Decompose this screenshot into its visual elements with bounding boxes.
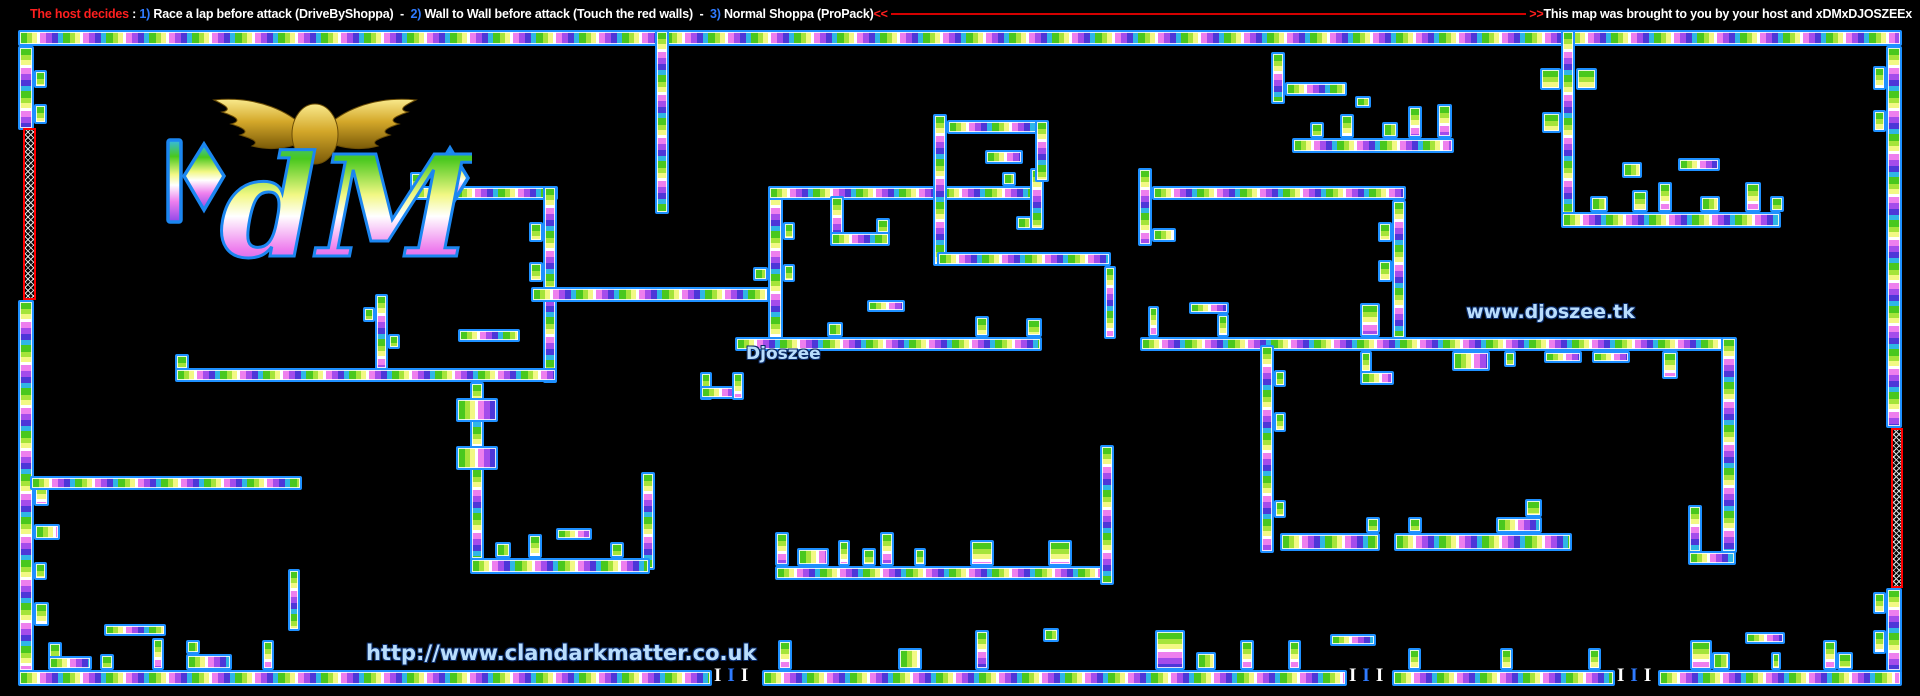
wall-segment: [1873, 110, 1886, 132]
wall-segment: [1561, 212, 1781, 228]
wall-segment: [1678, 158, 1720, 171]
wall-segment: [175, 368, 557, 382]
wall-segment: [1542, 112, 1561, 133]
wall-segment: [1662, 351, 1678, 379]
header-text-segment: >>: [1529, 7, 1543, 21]
rules-text-left: The host decides : 1) Race a lap before …: [30, 7, 888, 21]
wall-segment: [18, 30, 1902, 46]
wall-segment: [1217, 314, 1229, 337]
wall-segment: [1240, 640, 1254, 670]
wall-segment: [1274, 370, 1286, 387]
wall-segment: [655, 30, 669, 214]
wall-segment: [34, 524, 60, 540]
wall-segment: [1048, 540, 1072, 566]
wall-segment: [1576, 68, 1597, 90]
wall-segment: [34, 602, 49, 626]
wall-segment: [531, 287, 769, 302]
spawn-marker-glyph: I: [1362, 668, 1369, 684]
spawn-marker-glyph: I: [1617, 668, 1624, 684]
wall-segment: [34, 70, 47, 88]
red-wall-segment: [23, 128, 36, 300]
wall-segment: [1873, 66, 1886, 90]
wall-segment: [1285, 82, 1347, 96]
wall-segment: [1271, 52, 1285, 104]
wall-segment: [1540, 68, 1561, 90]
wall-segment: [1140, 337, 1723, 351]
wall-segment: [528, 534, 542, 558]
wall-segment: [970, 540, 994, 566]
wall-segment: [48, 656, 92, 670]
clan-website-label: http://www.clandarkmatter.co.uk: [366, 641, 756, 665]
wall-segment: [456, 398, 498, 422]
wall-segment: [1721, 337, 1737, 553]
header-text-segment: 2): [410, 7, 421, 21]
wall-segment: [1292, 138, 1454, 153]
wall-segment: [1378, 260, 1392, 282]
wall-segment: [827, 322, 843, 337]
wall-segment: [1712, 652, 1730, 670]
wall-segment: [838, 540, 850, 566]
wall-segment: [34, 562, 47, 580]
wall-segment: [1688, 505, 1702, 553]
wall-segment: [975, 630, 989, 670]
wall-segment: [1452, 351, 1490, 371]
wall-segment: [610, 542, 624, 558]
wall-segment: [1688, 551, 1736, 565]
wall-segment: [1408, 517, 1422, 533]
wall-segment: [1148, 306, 1159, 337]
spawn-marker-glyph: I: [714, 668, 721, 684]
wall-segment: [1837, 652, 1853, 670]
wall-segment: [914, 548, 926, 566]
header-text-segment: :: [129, 7, 140, 21]
wall-segment: [1745, 632, 1785, 644]
wall-segment: [34, 104, 47, 124]
wall-segment: [458, 329, 520, 342]
wall-segment: [288, 569, 300, 631]
wall-segment: [1310, 122, 1324, 138]
wall-segment: [797, 548, 829, 566]
wall-segment: [775, 532, 789, 566]
wall-segment: [100, 654, 114, 670]
wall-segment: [1408, 648, 1421, 670]
wall-segment: [543, 186, 557, 383]
header-text-segment: Normal Shoppa (ProPack): [721, 7, 874, 21]
wall-segment: [1360, 303, 1380, 337]
wall-segment: [880, 532, 894, 566]
wall-segment: [778, 640, 792, 670]
wall-segment: [975, 316, 989, 337]
wall-segment: [762, 670, 1347, 686]
wall-segment: [1592, 351, 1630, 363]
wall-segment: [1340, 114, 1354, 138]
wall-segment: [876, 218, 890, 234]
wall-segment: [768, 186, 783, 352]
wall-segment: [898, 648, 922, 670]
wall-segment: [947, 120, 1047, 134]
wall-segment: [1700, 196, 1720, 212]
header-text-segment: Wall to Wall before attack (Touch the re…: [421, 7, 710, 21]
wall-segment: [1002, 172, 1016, 186]
wall-segment: [830, 232, 890, 246]
wall-segment: [1588, 648, 1601, 670]
wall-segment: [1035, 120, 1049, 182]
wall-segment: [1658, 182, 1672, 212]
wall-segment: [1155, 630, 1185, 670]
wall-segment: [30, 476, 302, 490]
wall-segment: [1366, 517, 1380, 533]
wall-segment: [1658, 670, 1902, 686]
wall-segment: [388, 334, 400, 349]
header-divider-line: [891, 13, 1527, 15]
wall-segment: [1280, 533, 1380, 551]
wall-segment: [1100, 445, 1114, 585]
wall-segment: [1288, 640, 1301, 670]
header-text-segment: This map was brought to you by your host…: [1543, 7, 1912, 21]
wall-segment: [1043, 628, 1059, 642]
wall-segment: [1771, 652, 1781, 670]
spawn-marker-glyph: I: [741, 668, 748, 684]
wall-segment: [1330, 634, 1376, 646]
header-text-segment: 3): [710, 7, 721, 21]
header-text-segment: Race a lap before attack (DriveByShoppa)…: [150, 7, 410, 21]
wall-segment: [1378, 222, 1392, 242]
wall-segment: [375, 294, 388, 370]
wall-segment: [1544, 351, 1582, 363]
wall-segment: [1770, 196, 1784, 212]
wall-segment: [937, 252, 1111, 266]
wall-segment: [1437, 104, 1452, 138]
wall-segment: [1525, 499, 1542, 517]
spawn-marker-glyph: I: [1630, 668, 1637, 684]
spawn-markers: III: [714, 668, 748, 684]
header-text-segment: The host decides: [30, 7, 129, 21]
wall-segment: [1394, 533, 1572, 551]
wall-segment: [556, 528, 592, 540]
wall-segment: [495, 542, 511, 558]
wall-segment: [753, 267, 768, 281]
wall-segment: [1189, 302, 1229, 314]
wall-segment: [1873, 592, 1886, 614]
wall-segment: [1382, 122, 1398, 138]
wall-segment: [262, 640, 274, 670]
wall-segment: [529, 222, 543, 242]
clan-logo: dM: [160, 88, 472, 280]
wall-segment: [1274, 412, 1286, 432]
wall-segment: [1138, 168, 1152, 246]
wall-segment: [1274, 500, 1286, 518]
wall-segment: [104, 624, 166, 636]
spawn-marker-glyph: I: [1376, 668, 1383, 684]
wall-segment: [1745, 182, 1761, 212]
wall-segment: [1690, 640, 1712, 670]
wall-segment: [1355, 96, 1371, 108]
wall-segment: [186, 654, 232, 670]
wall-segment: [456, 446, 498, 470]
wall-segment: [1496, 517, 1542, 533]
wall-segment: [1632, 190, 1648, 212]
wall-segment: [1590, 196, 1608, 212]
credits-text-right: >>This map was brought to you by your ho…: [1529, 7, 1912, 21]
wall-segment: [783, 222, 795, 240]
wall-segment: [1196, 652, 1216, 670]
wall-segment: [1504, 351, 1516, 367]
wall-segment: [470, 558, 650, 574]
wall-segment: [933, 114, 947, 266]
wall-segment: [1408, 106, 1422, 138]
spawn-markers: III: [1349, 668, 1383, 684]
header-text-segment: 1): [139, 7, 150, 21]
wall-segment: [152, 638, 164, 670]
wall-segment: [775, 566, 1108, 580]
wall-segment: [1392, 670, 1615, 686]
wall-segment: [18, 46, 34, 130]
wall-segment: [1016, 216, 1032, 230]
spawn-marker-glyph: I: [727, 668, 734, 684]
red-wall-segment: [1891, 428, 1903, 588]
wall-segment: [1500, 648, 1513, 670]
spawn-marker-glyph: I: [1644, 668, 1651, 684]
wall-segment: [1026, 318, 1042, 337]
wall-segment: [1260, 345, 1274, 553]
wall-segment: [862, 548, 876, 566]
wall-segment: [867, 300, 905, 312]
wall-segment: [1886, 46, 1902, 428]
spawn-markers: III: [1617, 668, 1651, 684]
wall-segment: [768, 186, 1039, 200]
wall-segment: [985, 150, 1023, 164]
wall-segment: [18, 670, 712, 686]
header-text-segment: <<: [874, 7, 888, 21]
wall-segment: [363, 307, 375, 322]
website-label: www.djoszee.tk: [1466, 301, 1635, 323]
wall-segment: [1823, 640, 1837, 670]
wall-segment: [1622, 162, 1642, 178]
wall-segment: [641, 472, 655, 570]
wall-segment: [1561, 30, 1575, 220]
wall-segment: [1104, 266, 1116, 339]
wall-segment: [1360, 371, 1394, 385]
wall-segment: [186, 640, 200, 654]
player-label: Djoszee: [746, 344, 821, 364]
wall-segment: [1886, 588, 1902, 672]
wall-segment: [783, 264, 795, 282]
wall-segment: [529, 262, 543, 282]
logo-letters: dM: [220, 126, 472, 280]
rules-header: The host decides : 1) Race a lap before …: [0, 0, 1920, 28]
wall-segment: [1152, 228, 1176, 242]
spawn-marker-glyph: I: [1349, 668, 1356, 684]
wall-segment: [732, 372, 744, 400]
wall-segment: [1392, 200, 1406, 339]
wall-segment: [1873, 630, 1886, 654]
wall-segment: [1152, 186, 1406, 200]
